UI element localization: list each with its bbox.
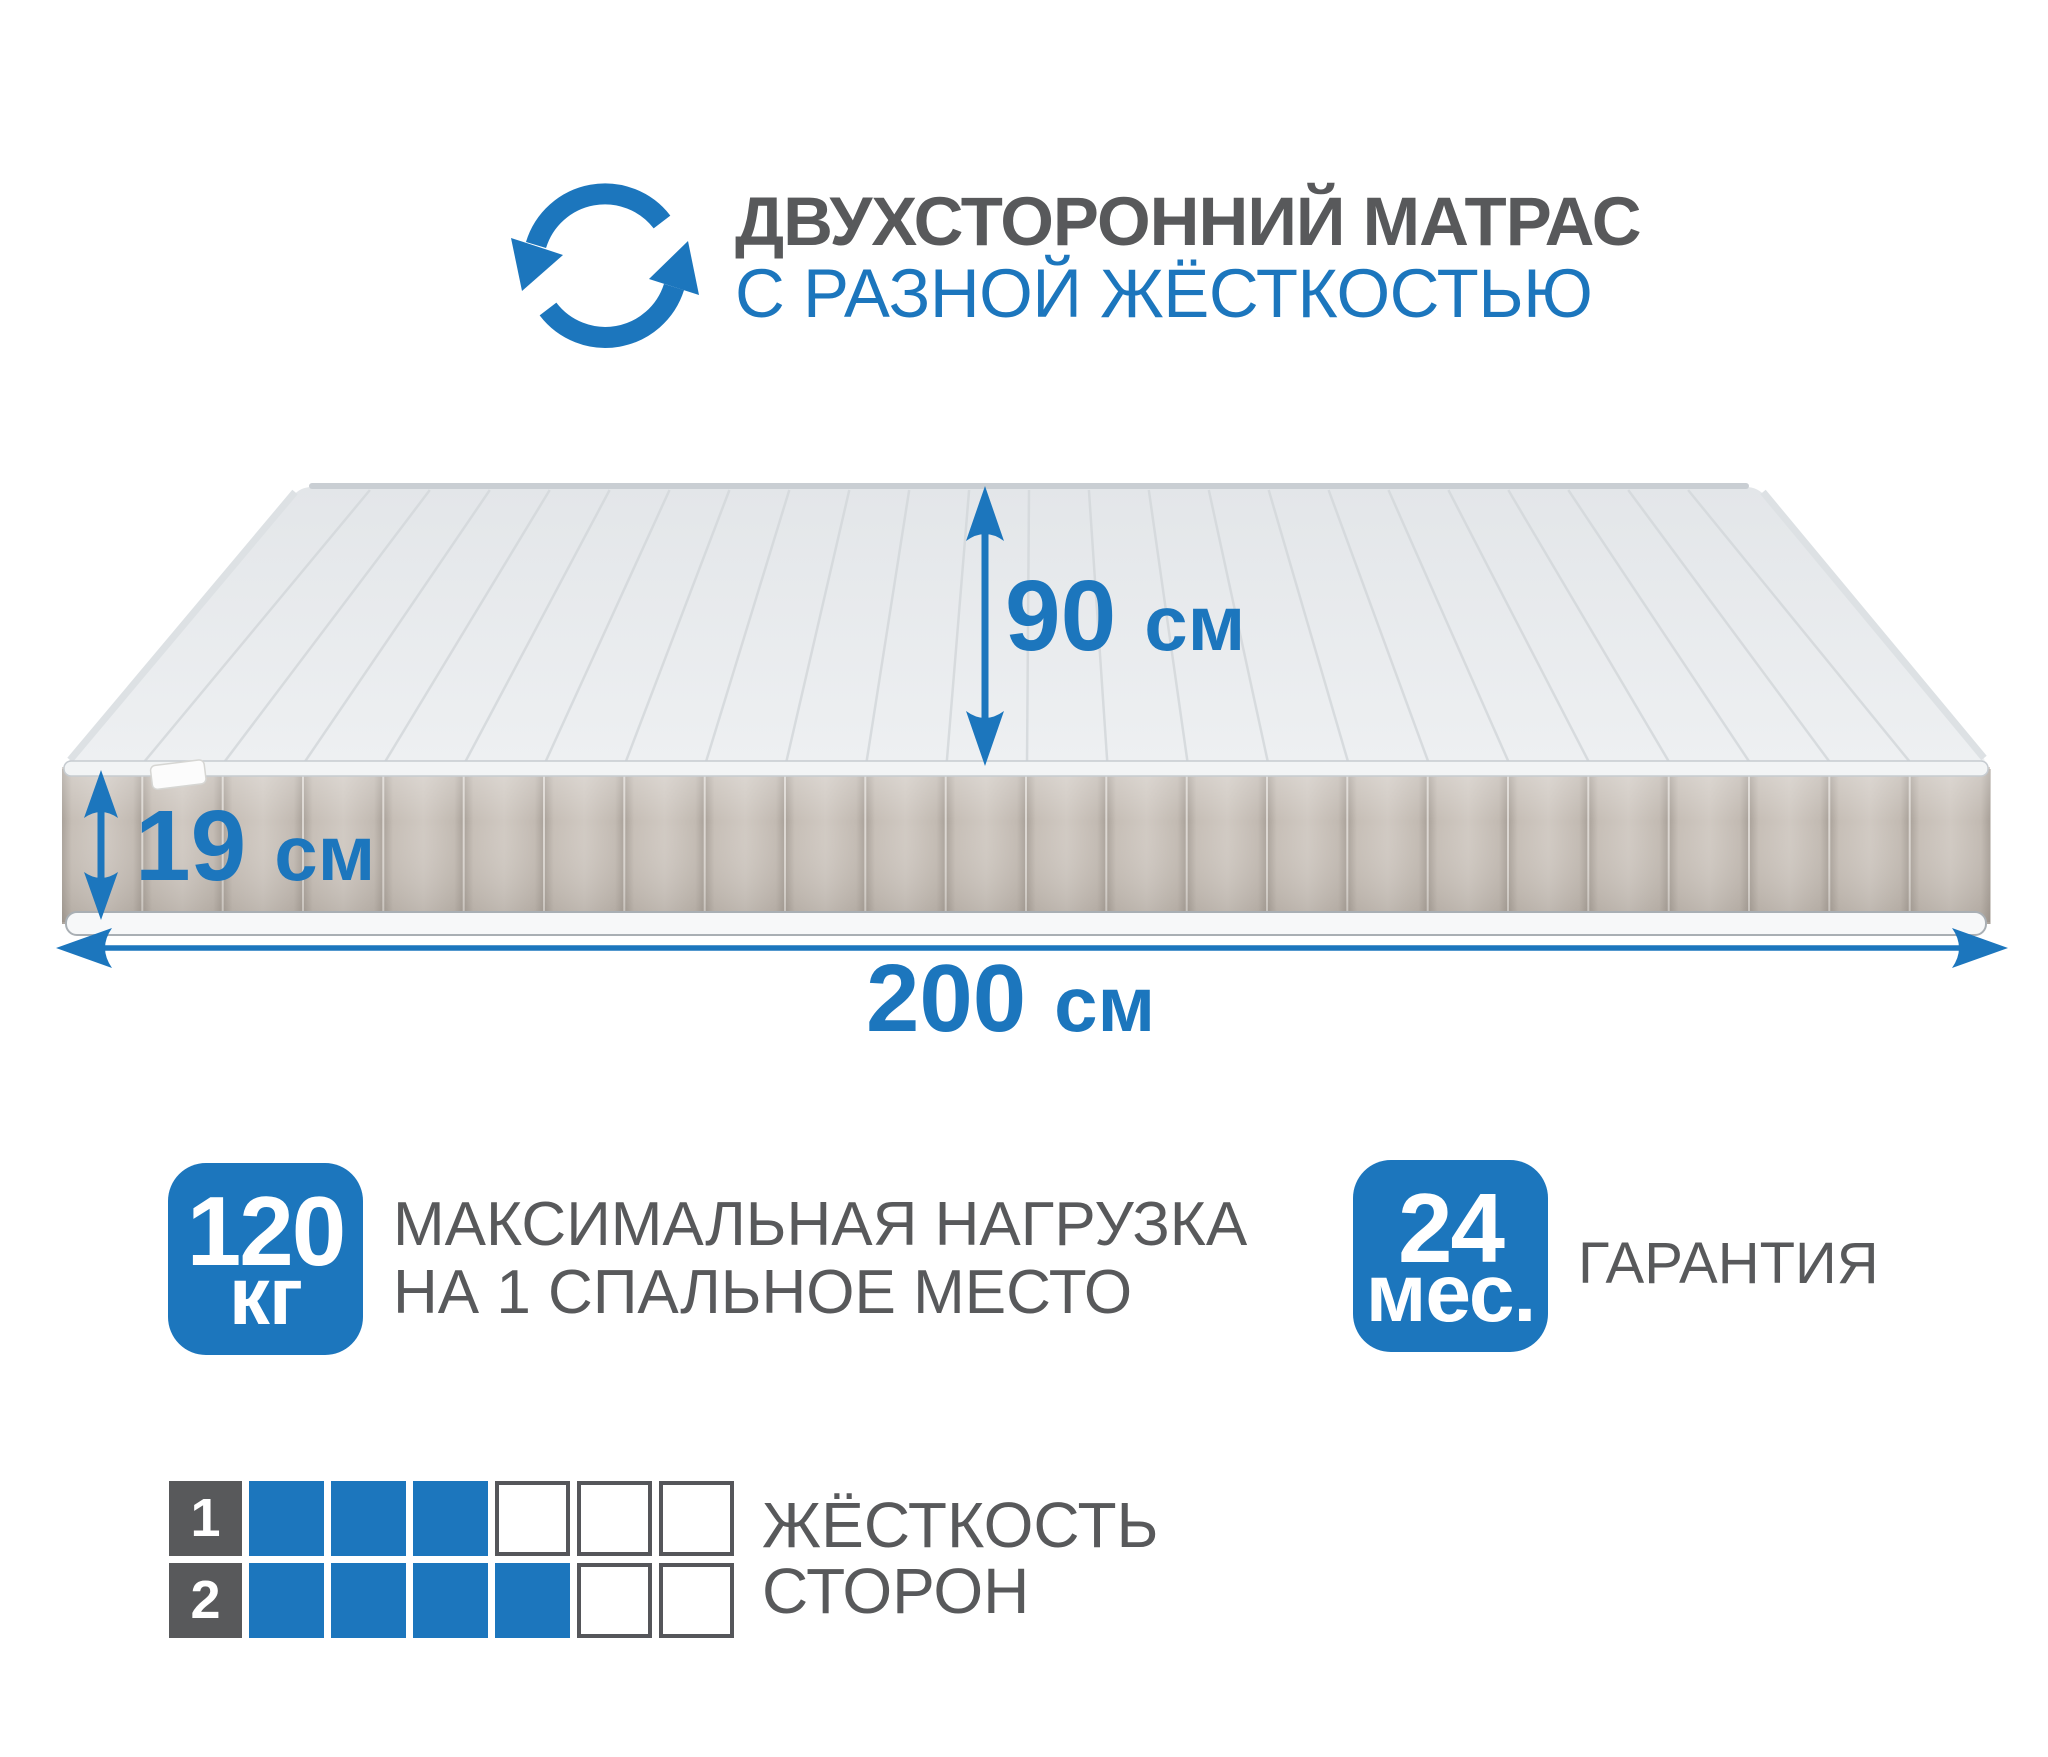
firmness-cell [413, 1563, 488, 1638]
warranty-caption: ГАРАНТИЯ [1578, 1232, 1879, 1296]
firmness-cell [331, 1481, 406, 1556]
firmness-cell [659, 1481, 734, 1556]
side-number-badge: 1 [169, 1481, 242, 1556]
max-load-badge: 120 кг [168, 1163, 363, 1355]
firmness-cell [659, 1563, 734, 1638]
side-number-badge: 2 [169, 1563, 242, 1638]
max-load-caption-line1: МАКСИМАЛЬНАЯ НАГРУЗКА [393, 1191, 1247, 1259]
warranty-unit: мес. [1366, 1266, 1536, 1322]
firmness-cell [249, 1563, 324, 1638]
firmness-row-side-2: 2 [169, 1563, 734, 1638]
firmness-cell [495, 1481, 570, 1556]
max-load-unit: кг [229, 1269, 302, 1325]
firmness-cell [413, 1481, 488, 1556]
firmness-row-side-1: 1 [169, 1481, 734, 1556]
firmness-caption-line1: ЖЁСТКОСТЬ [762, 1492, 1159, 1558]
warranty-badge: 24 мес. [1353, 1160, 1548, 1352]
firmness-caption-line2: СТОРОН [762, 1558, 1159, 1624]
firmness-cell [331, 1563, 406, 1638]
max-load-caption-line2: НА 1 СПАЛЬНОЕ МЕСТО [393, 1259, 1247, 1327]
firmness-cell [249, 1481, 324, 1556]
max-load-caption: МАКСИМАЛЬНАЯ НАГРУЗКА НА 1 СПАЛЬНОЕ МЕСТ… [393, 1191, 1247, 1327]
mattress-infographic: ДВУХСТОРОННИЙ МАТРАС С РАЗНОЙ ЖЁСТКОСТЬЮ [0, 0, 2048, 1757]
firmness-caption: ЖЁСТКОСТЬ СТОРОН [762, 1492, 1159, 1624]
mattress-bottom-piping [66, 912, 1986, 935]
mattress-top-piping [64, 761, 1988, 776]
firmness-cell [577, 1563, 652, 1638]
firmness-cell [577, 1481, 652, 1556]
firmness-scale: 12 [169, 1481, 734, 1638]
mattress-illustration: 90см 19см 200см [0, 0, 2048, 1100]
firmness-cell [495, 1563, 570, 1638]
length-dimension-label: 200см [866, 945, 1155, 1052]
